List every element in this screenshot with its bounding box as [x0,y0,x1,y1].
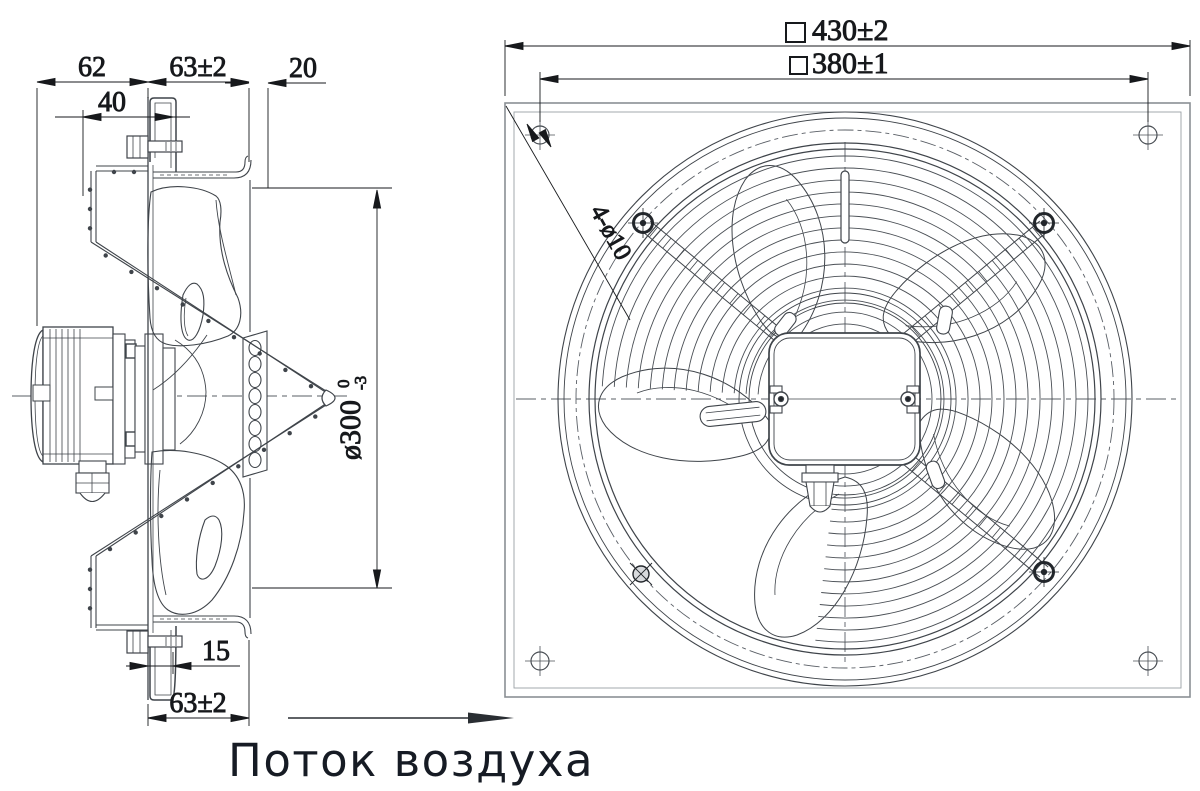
airflow-arrow-head [468,713,514,724]
dim-63-bottom-label: 63±2 [169,688,226,719]
motor-lug [95,387,113,400]
guard-wire-dot [88,568,92,572]
guard-wire-dot [258,351,262,355]
guard-spoke-ladder [891,444,1048,577]
mounting-hole [525,646,555,676]
guard-wire-dot [88,207,92,211]
technical-drawing-page: 62 63±2 20 40 15 63±2 ø300 0 -3 430±2 38… [0,0,1200,791]
guard-wire-dot [309,384,313,388]
guard-wire-dot [236,464,240,468]
blade-pill [699,401,767,428]
motor-tab [33,385,50,401]
vent-ring [243,331,267,477]
guard-wire-dot [159,514,163,518]
guard-spoke-ladder [891,221,1048,354]
guard-wire-dot [129,270,133,274]
top-bracket [150,98,176,172]
guard-wire-dot [88,606,92,610]
guard-wire-dot [262,448,266,452]
guard-wire-dot [155,286,159,290]
guard-wire-dot [88,226,92,230]
dim-20-label: 20 [289,53,317,84]
fan-technical-drawing: 62 63±2 20 40 15 63±2 ø300 0 -3 430±2 38… [0,0,1200,791]
airflow-annotation: Поток воздуха [228,713,594,788]
dim-380-value: 380±1 [812,47,888,80]
side-view [12,97,348,700]
guard-wire-dot [211,481,215,485]
cable-gland-side [76,461,109,502]
guard-bolt [1029,557,1059,587]
mounting-hole [1133,646,1163,676]
guard-wire-dot [112,170,116,174]
guard-wire-dot [232,335,236,339]
guard-wire-dot [132,170,136,174]
guard-seam-slot [841,171,849,243]
extension-lines [37,40,1190,726]
dim-430-value: 430±2 [812,14,888,47]
square-symbol [790,57,807,74]
junction-box [769,333,920,512]
guard-spoke-ladder [642,221,799,354]
guard-bolt [1029,208,1059,238]
airflow-label: Поток воздуха [228,734,594,787]
front-view [505,103,1190,697]
guard-wire-dot [288,431,292,435]
hub-assembly [113,334,175,464]
dim-62-label: 62 [78,52,106,83]
guard-wire-dot [313,414,317,418]
cable-gland-front [802,465,838,512]
dia300-tol-lower: -3 [351,376,370,390]
dim-430-label: 430±2 [786,14,888,47]
motor [31,327,113,464]
dim-63-top-label: 63±2 [169,52,226,83]
top-bolt [127,136,182,158]
guard-wire-dot [104,253,108,257]
mounting-hole [1133,120,1163,150]
dim-40-label: 40 [98,87,126,118]
guard-wire-dot [181,302,185,306]
guard-wire-dot [283,368,287,372]
dia300-value: ø300 [334,400,367,460]
dim-15-label: 15 [202,636,230,667]
guard-wire-dot [108,547,112,551]
guard-wire-dot [88,188,92,192]
dim-dia300-label: ø300 0 -3 [334,376,370,460]
guard-wire-dot [206,319,210,323]
square-symbol [786,23,805,42]
guard-wire-dot [134,530,138,534]
guard-rivet [630,563,652,585]
guard-wire-dot [185,497,189,501]
guard-wire-dot [88,587,92,591]
bottom-bolt [127,631,182,653]
dim-380-label: 380±1 [790,47,888,80]
